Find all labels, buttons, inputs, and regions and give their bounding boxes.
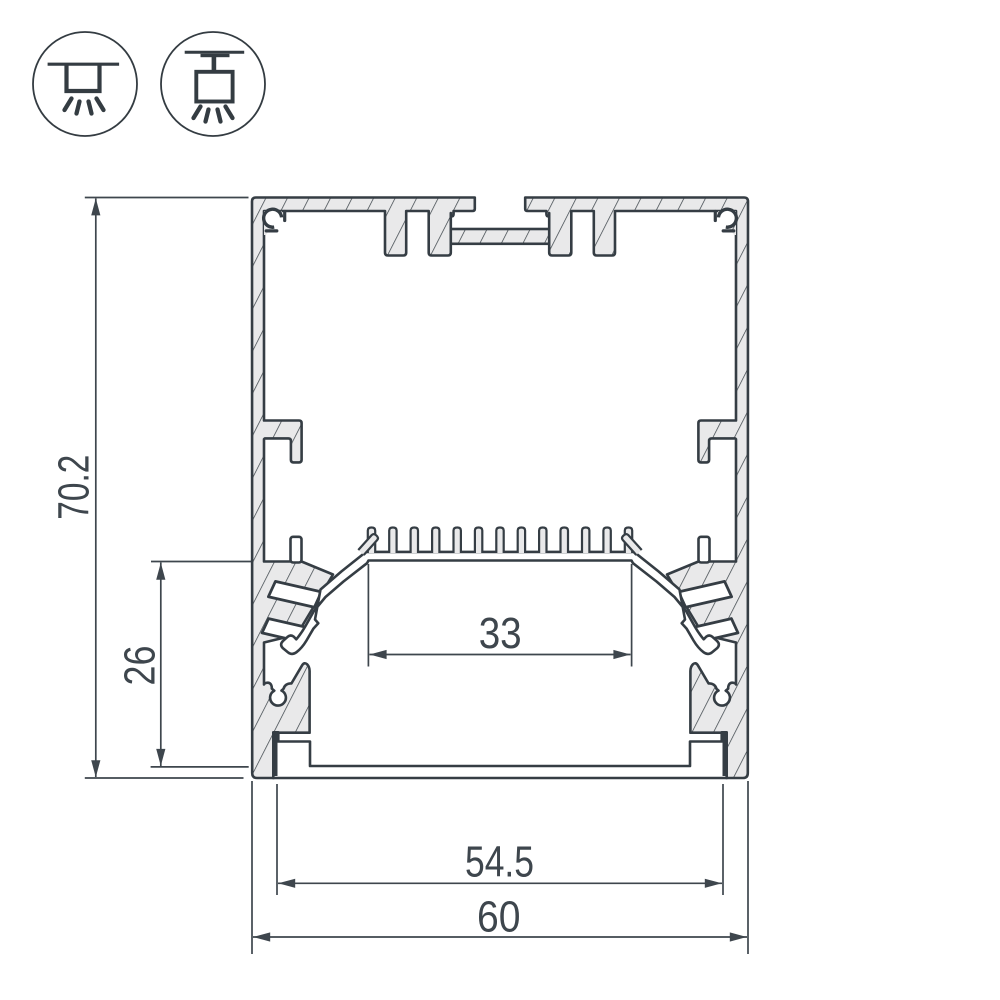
svg-text:26: 26	[115, 646, 164, 686]
svg-text:54.5: 54.5	[465, 837, 534, 886]
svg-text:70.2: 70.2	[49, 455, 98, 520]
svg-text:60: 60	[477, 893, 521, 942]
svg-text:33: 33	[479, 609, 522, 658]
